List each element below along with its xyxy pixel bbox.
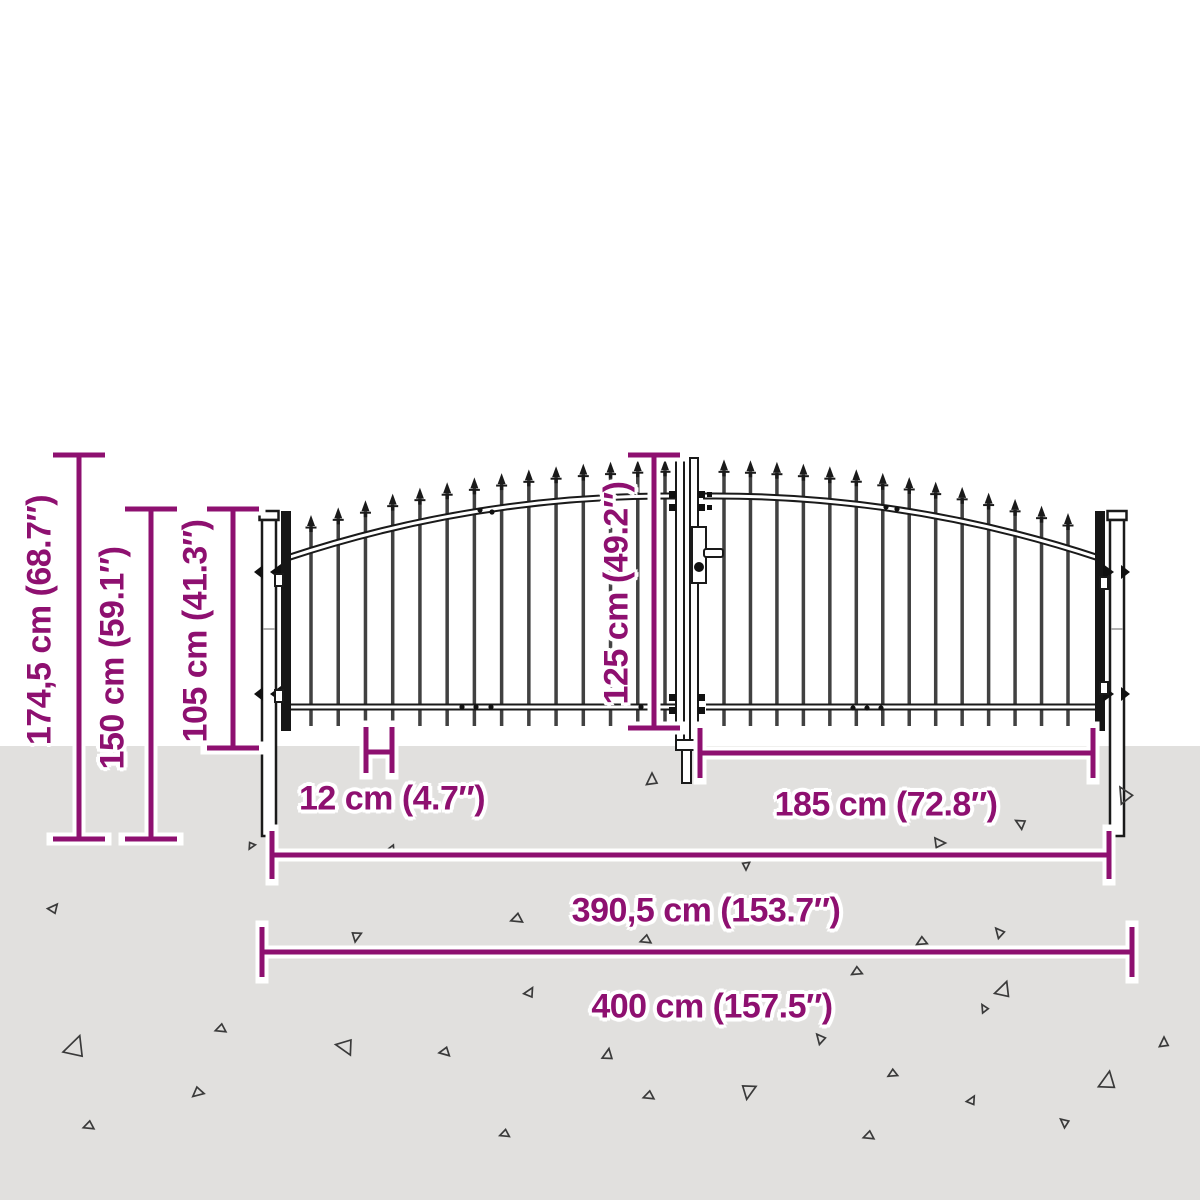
- dim-label-width-400: 400 cm (157.5″): [591, 988, 832, 1027]
- dim-label-height-150: 150 cm (59.1″): [94, 547, 133, 770]
- dim-label-height-105: 105 cm (41.3″): [177, 520, 216, 743]
- dim-label-total-height: 174,5 cm (68.7″): [21, 495, 60, 745]
- right-door-top-rail: [703, 496, 1099, 558]
- lock-knob: [694, 562, 704, 572]
- dim-label-width-185: 185 cm (72.8″): [775, 786, 998, 825]
- right-post: [1108, 511, 1127, 836]
- right-door-top-rail-inner: [703, 496, 1099, 558]
- dim-label-spacing-12: 12 cm (4.7″): [299, 780, 485, 819]
- left-post: [260, 511, 279, 836]
- spacing-12-bracket: [366, 727, 392, 773]
- gate-lock: [692, 527, 723, 583]
- left-centre-stile: [676, 458, 684, 740]
- dim-label-width-390: 390,5 cm (153.7″): [572, 892, 841, 931]
- dim-label-height-125: 125 cm (49.2″): [598, 482, 637, 705]
- width-390-line: [272, 831, 1109, 879]
- right-centre-stile: [690, 458, 698, 740]
- width-185-line: [700, 728, 1093, 778]
- product-dimension-diagram: 174,5 cm (68.7″) 150 cm (59.1″) 105 cm (…: [0, 0, 1200, 1200]
- height-150-line: [125, 509, 177, 839]
- gate-handle: [704, 549, 723, 557]
